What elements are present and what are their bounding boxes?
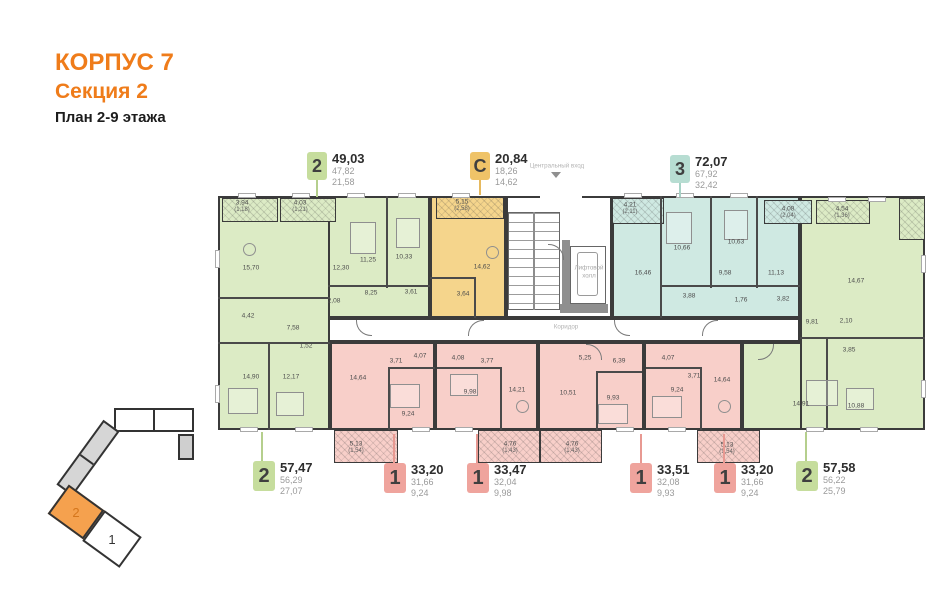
area-reduced: (2,04) (780, 212, 796, 219)
building-title: КОРПУС 7 (55, 48, 174, 78)
room-area-label: 3,85 (843, 346, 856, 353)
elevator-wall (562, 240, 570, 310)
locator-segment-diagonal (56, 420, 119, 496)
room-area-label: 16,46 (635, 269, 652, 276)
total-area: 57,58 (823, 461, 856, 475)
area-reduced: (2,58) (454, 205, 470, 212)
window (860, 427, 878, 432)
bed-furniture (396, 218, 420, 248)
kitchen-area: 21,58 (332, 177, 365, 188)
balcony-area-label: 5,13(1,54) (719, 441, 735, 455)
total-area: 49,03 (332, 152, 365, 166)
apartment-type-badge: 1 (630, 463, 652, 493)
callout-1room-4: 1 33,20 31,66 9,24 (714, 463, 774, 499)
room-area-label: 15,70 (243, 264, 260, 271)
room-area-label: 6,39 (613, 357, 626, 364)
room-area-label: 10,33 (396, 253, 413, 260)
room-area-label: 9,93 (607, 394, 620, 401)
bed-furniture (666, 212, 692, 244)
room-area-label: 8,25 (365, 289, 378, 296)
bed-furniture (390, 384, 420, 408)
room-area-label: 4,08 (452, 354, 465, 361)
corridor-label: Коридор (554, 324, 578, 331)
interior-wall (218, 297, 330, 299)
balcony-studio (436, 197, 504, 219)
window (806, 427, 824, 432)
room-area-label: 9,24 (402, 410, 415, 417)
callout-2room-bottom-left: 2 57,47 56,29 27,07 (253, 461, 313, 497)
room-area-label: 14,90 (243, 373, 260, 380)
callout-leader-line (805, 432, 807, 461)
apartment-type-badge: 1 (714, 463, 736, 493)
window (295, 427, 313, 432)
room-area-label: 3,88 (683, 292, 696, 299)
apartment-green-right-lower (742, 342, 802, 430)
room-area-label: 1,52 (300, 342, 313, 349)
entrance-opening (540, 193, 582, 200)
room-area-label: 14,21 (509, 386, 526, 393)
balcony-corner (899, 198, 925, 240)
room-area-label: 3,82 (777, 295, 790, 302)
callout-leader-line (640, 434, 642, 463)
room-area-label: 10,63 (728, 238, 745, 245)
window (668, 427, 686, 432)
balcony-teal-1 (612, 198, 664, 224)
interior-wall (437, 367, 502, 369)
room-area-label: 3,71 (688, 372, 701, 379)
central-entrance-label: Центральный вход (530, 163, 584, 170)
locator-segment (178, 434, 194, 460)
kitchen-area: 9,24 (741, 488, 774, 499)
room-area-label: 1,76 (735, 296, 748, 303)
area-reduced: (1,43) (502, 447, 518, 454)
living-area: 32,08 (657, 477, 690, 488)
elevator-wall-bottom (560, 304, 608, 313)
balcony-area-label: 4,08(2,04) (780, 205, 796, 219)
total-area: 33,20 (411, 463, 444, 477)
bed-furniture (652, 396, 682, 418)
interior-wall (328, 285, 430, 287)
bed-furniture (806, 380, 838, 406)
apartment-type-badge: 2 (253, 461, 275, 491)
kitchen-area: 25,79 (823, 486, 856, 497)
total-area: 20,84 (495, 152, 528, 166)
interior-wall (388, 367, 435, 369)
room-area-label: 14,64 (714, 376, 731, 383)
apartment-green-top (328, 196, 430, 318)
area-reduced: (1,54) (348, 447, 364, 454)
building-locator-map: 1 2 (52, 398, 212, 573)
area-reduced: (1,18) (234, 206, 250, 213)
window (412, 427, 430, 432)
balcony-area-label: 4,03(1,21) (292, 199, 308, 213)
apartment-type-badge: 2 (307, 152, 327, 180)
room-area-label: 10,66 (674, 244, 691, 251)
locator-segment-divider (80, 454, 94, 465)
window (238, 193, 256, 198)
balcony-area-label: 4,21(2,11) (622, 201, 637, 215)
balcony-area-label: 5,13(1,54) (348, 440, 364, 454)
room-area-label: 4,07 (414, 352, 427, 359)
callout-leader-line (261, 432, 263, 461)
room-area-label: 10,88 (848, 402, 865, 409)
interior-wall (474, 277, 476, 318)
interior-wall (800, 337, 925, 339)
total-area: 33,47 (494, 463, 527, 477)
room-area-label: 4,42 (242, 312, 255, 319)
apartment-type-badge: 2 (796, 461, 818, 491)
kitchen-area: 9,24 (411, 488, 444, 499)
window (921, 380, 926, 398)
callout-1room-2: 1 33,47 32,04 9,98 (467, 463, 527, 499)
living-area: 56,22 (823, 475, 856, 486)
balcony-green-left (222, 198, 278, 222)
bed-furniture (228, 388, 258, 414)
callout-leader-line (723, 434, 725, 463)
window (398, 193, 416, 198)
window (215, 250, 220, 268)
kitchen-area: 27,07 (280, 486, 313, 497)
room-area-label: 14,91 (793, 400, 810, 407)
section-title: Секция 2 (55, 78, 174, 105)
living-area: 56,29 (280, 475, 313, 486)
living-area: 31,66 (411, 477, 444, 488)
room-area-label: 9,58 (719, 269, 732, 276)
living-area: 31,66 (741, 477, 774, 488)
table-furniture (243, 243, 256, 256)
apartment-type-badge: 1 (467, 463, 489, 493)
kitchen-area: 14,62 (495, 177, 528, 188)
room-area-label: 12,30 (333, 264, 350, 271)
window (730, 193, 748, 198)
floor-plan-page: КОРПУС 7 Секция 2 План 2-9 этажа (0, 0, 941, 600)
balcony-pink-1 (334, 430, 398, 463)
area-reduced: (1,21) (292, 206, 308, 213)
callout-1room-3: 1 33,51 32,08 9,93 (630, 463, 690, 499)
elevator-hall-label-1: Лифтовой (575, 265, 604, 272)
room-area-label: 9,81 (806, 318, 819, 325)
interior-wall (386, 196, 388, 288)
bed-furniture (276, 392, 304, 416)
balcony-area-label: 3,94(1,18) (234, 199, 250, 213)
room-area-label: 3,71 (390, 357, 403, 364)
callout-1room-1: 1 33,20 31,66 9,24 (384, 463, 444, 499)
callout-3room-top: 3 72,07 67,92 32,42 (670, 155, 728, 191)
window (455, 427, 473, 432)
total-area: 33,51 (657, 463, 690, 477)
area-reduced: (1,36) (834, 212, 850, 219)
kitchen-area: 9,98 (494, 488, 527, 499)
interior-wall (268, 344, 270, 430)
bed-furniture (350, 222, 376, 254)
room-area-label: 3,64 (457, 290, 470, 297)
callout-leader-line (393, 434, 395, 463)
interior-wall (596, 371, 642, 373)
staircase-divider (533, 212, 535, 310)
interior-wall (646, 367, 702, 369)
kitchen-area: 9,93 (657, 488, 690, 499)
window (624, 193, 642, 198)
balcony-area-label: 4,54(1,36) (834, 205, 850, 219)
callout-2room-top: 2 49,03 47,82 21,58 (307, 152, 365, 188)
apartment-type-badge: 1 (384, 463, 406, 493)
locator-section-2-label: 2 (56, 496, 96, 528)
room-area-label: 11,25 (360, 256, 376, 263)
room-area-label: 5,25 (579, 354, 592, 361)
room-area-label: 14,62 (474, 263, 491, 270)
table-furniture (516, 400, 529, 413)
room-area-label: 14,64 (350, 374, 367, 381)
window (292, 193, 310, 198)
room-area-label: 9,98 (464, 388, 477, 395)
locator-segment-divider (153, 408, 155, 432)
total-area: 33,20 (741, 463, 774, 477)
room-area-label: 9,24 (671, 386, 684, 393)
room-area-label: 3,77 (481, 357, 494, 364)
window (828, 197, 846, 202)
entrance-arrow-icon (551, 172, 561, 178)
balcony-green-top (280, 198, 336, 222)
window (921, 255, 926, 273)
page-header: КОРПУС 7 Секция 2 План 2-9 этажа (55, 48, 174, 126)
apartment-type-badge: 3 (670, 155, 690, 183)
area-reduced: (2,11) (622, 208, 637, 215)
room-area-label: 12,17 (283, 373, 300, 380)
room-area-label: 2,08 (328, 297, 341, 304)
elevator-hall-label-2: холл (582, 273, 596, 280)
area-reduced: (1,43) (564, 447, 580, 454)
interior-wall (500, 368, 502, 430)
kitchen-area: 32,42 (695, 180, 728, 191)
balcony-area-label: 5,15(2,58) (454, 198, 470, 212)
living-area: 18,26 (495, 166, 528, 177)
room-area-label: 2,10 (840, 317, 853, 324)
total-area: 72,07 (695, 155, 728, 169)
interior-wall (660, 196, 662, 318)
balcony-area-label: 4,76(1,43) (564, 440, 580, 454)
interior-wall (756, 196, 758, 288)
balcony-area-label: 4,76(1,43) (502, 440, 518, 454)
living-area: 47,82 (332, 166, 365, 177)
area-reduced: (1,54) (719, 448, 735, 455)
window (215, 385, 220, 403)
room-area-label: 11,13 (768, 269, 784, 276)
room-area-label: 7,58 (287, 324, 300, 331)
plan-subtitle: План 2-9 этажа (55, 109, 174, 126)
room-area-label: 10,51 (560, 389, 577, 396)
bed-furniture (724, 210, 748, 240)
apartment-type-badge: C (470, 152, 490, 180)
room-area-label: 4,07 (662, 354, 675, 361)
callout-studio-top: C 20,84 18,26 14,62 (470, 152, 528, 188)
interior-wall (660, 285, 800, 287)
window (347, 193, 365, 198)
living-area: 67,92 (695, 169, 728, 180)
locator-section-1-label: 1 (91, 522, 133, 556)
interior-wall (430, 277, 476, 279)
interior-wall (710, 196, 712, 288)
living-area: 32,04 (494, 477, 527, 488)
interior-wall (218, 342, 330, 344)
window (616, 427, 634, 432)
window (240, 427, 258, 432)
window (868, 197, 886, 202)
bed-furniture (598, 404, 628, 424)
table-furniture (486, 246, 499, 259)
callout-leader-line (476, 434, 478, 463)
room-area-label: 3,61 (405, 288, 418, 295)
total-area: 57,47 (280, 461, 313, 475)
callout-2room-bottom-right: 2 57,58 56,22 25,79 (796, 461, 856, 497)
table-furniture (718, 400, 731, 413)
room-area-label: 14,67 (848, 277, 865, 284)
